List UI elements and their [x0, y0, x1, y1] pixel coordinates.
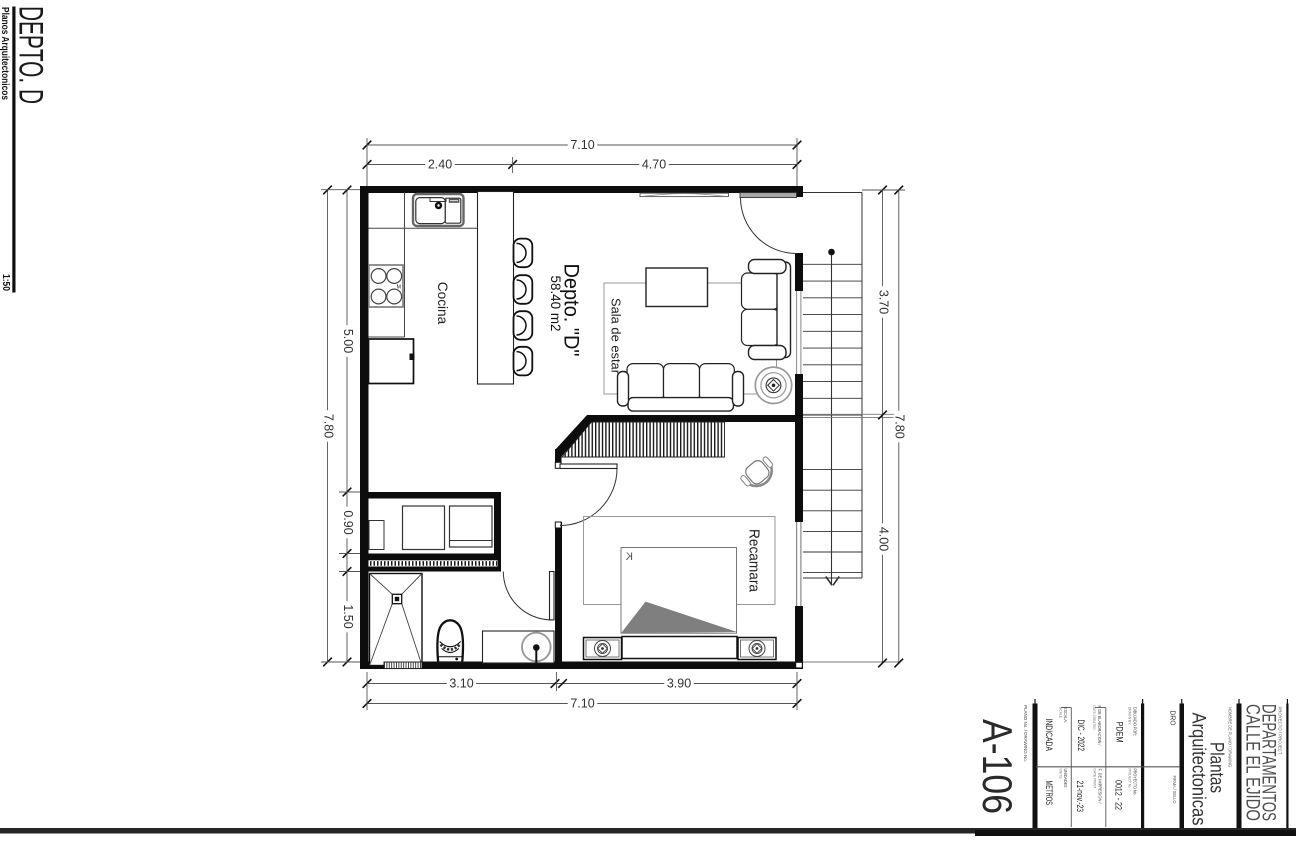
svg-text:INDICADA: INDICADA: [1043, 719, 1054, 752]
svg-text:PROJECT No.: PROJECT No.: [1128, 769, 1132, 789]
svg-text:Arquitectonicas: Arquitectonicas: [1188, 713, 1209, 826]
svg-text:PLANO No. / DRAWING No.: PLANO No. / DRAWING No.: [1022, 705, 1028, 762]
svg-text:3.10: 3.10: [449, 677, 473, 691]
svg-text:FIRMA / SELLO: FIRMA / SELLO: [1172, 776, 1177, 804]
svg-text:7.80: 7.80: [893, 414, 907, 438]
svg-text:0.90: 0.90: [341, 510, 355, 534]
svg-text:DRO: DRO: [1169, 711, 1178, 726]
svg-text:UNITS: UNITS: [1059, 769, 1063, 779]
svg-text:DEPTO. D: DEPTO. D: [12, 6, 50, 104]
svg-text:M: M: [397, 284, 401, 290]
svg-text:DRAWN BY:: DRAWN BY:: [1128, 707, 1132, 725]
svg-text:SCALE: SCALE: [1059, 707, 1063, 718]
svg-text:2.40: 2.40: [428, 158, 452, 172]
svg-text:7.10: 7.10: [570, 697, 594, 711]
svg-text:DATE PRINT: DATE PRINT: [1093, 769, 1097, 790]
svg-text:5.00: 5.00: [341, 329, 355, 353]
svg-text:PDEM: PDEM: [1114, 722, 1125, 743]
svg-text:21-nov.-23: 21-nov.-23: [1074, 781, 1085, 813]
svg-text:1.50: 1.50: [341, 604, 355, 628]
svg-text:4.00: 4.00: [876, 527, 890, 551]
svg-text:DATE CREATED: DATE CREATED: [1092, 706, 1096, 730]
svg-text:Planos Arquitectonicos: Planos Arquitectonicos: [0, 7, 11, 100]
svg-text:DIC - 2022: DIC - 2022: [1075, 720, 1086, 752]
svg-text:A-106: A-106: [974, 719, 1021, 814]
svg-text:Recamara: Recamara: [746, 529, 762, 593]
svg-text:1:50: 1:50: [0, 274, 12, 291]
svg-text:K: K: [625, 551, 633, 563]
svg-text:Sala de estar: Sala de estar: [609, 298, 624, 375]
svg-text:METROS: METROS: [1043, 781, 1054, 806]
svg-text:4.70: 4.70: [642, 158, 666, 172]
svg-text:7.80: 7.80: [321, 414, 335, 438]
svg-text:NOMBRE DE PLANO / DRAWING: NOMBRE DE PLANO / DRAWING: [1228, 707, 1233, 767]
svg-text:3.90: 3.90: [667, 677, 691, 691]
svg-text:CALLE EL EJIDO: CALLE EL EJIDO: [1242, 704, 1263, 821]
svg-text:7.10: 7.10: [570, 138, 594, 152]
svg-text:Cocina: Cocina: [435, 282, 451, 325]
svg-text:0012 - 22: 0012 - 22: [1113, 780, 1124, 810]
svg-text:58.40 m2: 58.40 m2: [548, 276, 564, 332]
svg-text:3.70: 3.70: [876, 290, 890, 314]
